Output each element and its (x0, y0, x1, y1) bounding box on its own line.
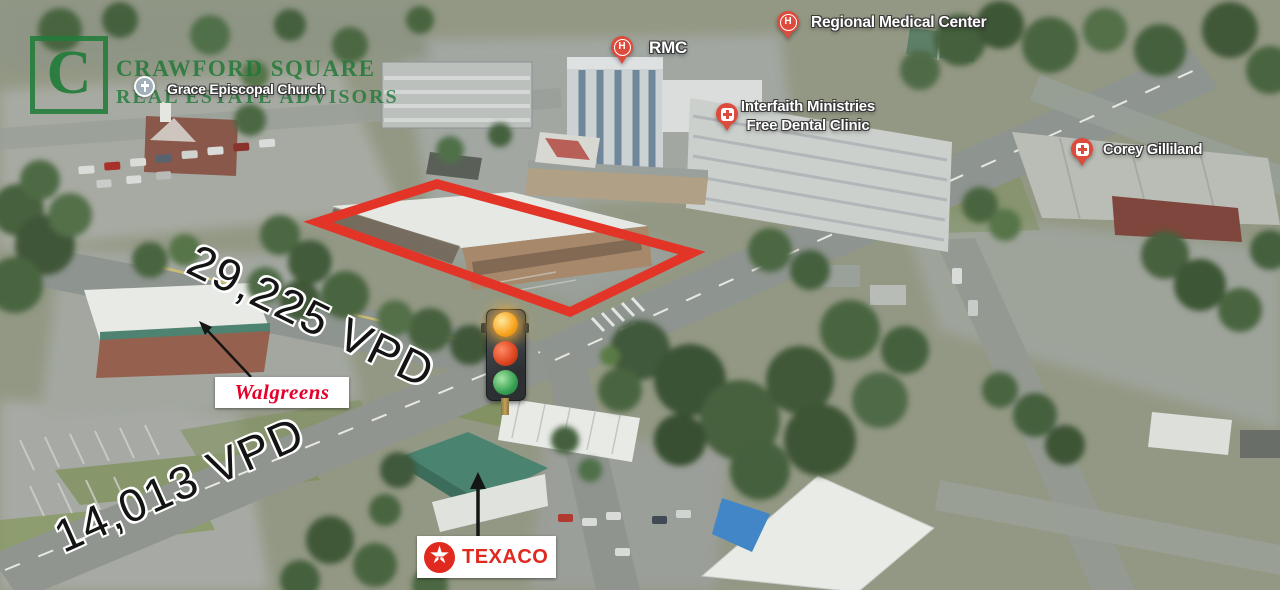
green-light (493, 370, 518, 395)
label-grace-episcopal-church: Grace Episcopal Church (167, 81, 325, 97)
texaco-star-icon: ★ T (424, 542, 455, 573)
medical-cross-glyph (1076, 143, 1089, 156)
hospital-h-glyph: H (614, 39, 631, 56)
interfaith-line1: Interfaith Ministries (733, 98, 883, 117)
medical-cross-glyph (721, 108, 734, 121)
label-regional-medical-center: Regional Medical Center (811, 14, 986, 32)
hospital-pin-icon: H (611, 36, 633, 58)
aerial-marketing-map: C CRAWFORD SQUARE REAL ESTATE ADVISORS G… (0, 0, 1280, 590)
label-rmc: RMC (649, 38, 687, 58)
traffic-light-bracket (523, 323, 529, 333)
red-light (493, 341, 518, 366)
hospital-pin-icon: H (777, 11, 799, 33)
texaco-wordmark: TEXACO (462, 546, 548, 569)
traffic-light-bracket (481, 323, 487, 333)
crawford-square-logo: C (30, 36, 108, 114)
interfaith-line2: Free Dental Clinic (733, 117, 883, 136)
texaco-badge: ★ T TEXACO (417, 536, 556, 578)
hospital-h-glyph: H (780, 14, 797, 31)
church-icon (134, 76, 155, 97)
medical-cross-pin-icon (1071, 138, 1093, 160)
walgreens-arrow (199, 321, 251, 377)
walgreens-wordmark: Walgreens (234, 380, 329, 405)
traffic-light-pole (501, 398, 509, 415)
traffic-light-icon (483, 309, 527, 417)
brand-name: CRAWFORD SQUARE (116, 56, 376, 82)
amber-light (493, 312, 518, 337)
label-corey-gilliland: Corey Gilliland (1103, 142, 1202, 158)
texaco-t-glyph: T (424, 545, 455, 576)
texaco-arrow (470, 472, 486, 537)
label-interfaith-ministries: Interfaith Ministries Free Dental Clinic (733, 98, 883, 136)
walgreens-badge: Walgreens (215, 377, 349, 408)
logo-letter: C (47, 42, 92, 104)
